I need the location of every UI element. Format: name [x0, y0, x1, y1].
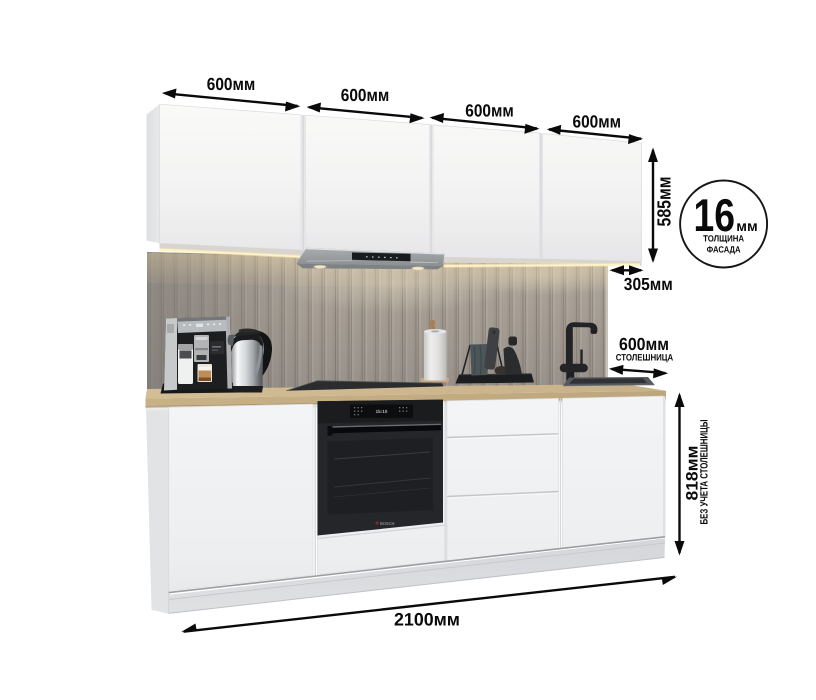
- svg-text:585мм: 585мм: [655, 177, 676, 227]
- svg-text:600мм: 600мм: [573, 112, 622, 132]
- svg-text:ФАСАДА: ФАСАДА: [707, 245, 741, 255]
- svg-text:15:10: 15:10: [376, 409, 388, 414]
- svg-text:BOSCH: BOSCH: [380, 521, 395, 526]
- svg-text:600мм: 600мм: [341, 85, 390, 105]
- svg-text:600мм: 600мм: [619, 334, 669, 354]
- svg-text:600мм: 600мм: [207, 74, 256, 94]
- svg-text:СТОЛЕШНИЦА: СТОЛЕШНИЦА: [616, 353, 674, 363]
- svg-text:БЕЗ УЧЕТА СТОЛЕШНИЦЫ: БЕЗ УЧЕТА СТОЛЕШНИЦЫ: [699, 420, 711, 525]
- svg-text:2100мм: 2100мм: [394, 610, 460, 630]
- svg-text:600мм: 600мм: [465, 101, 514, 121]
- svg-text:305мм: 305мм: [624, 274, 673, 294]
- svg-text:ТОЛЩИНА: ТОЛЩИНА: [703, 233, 744, 243]
